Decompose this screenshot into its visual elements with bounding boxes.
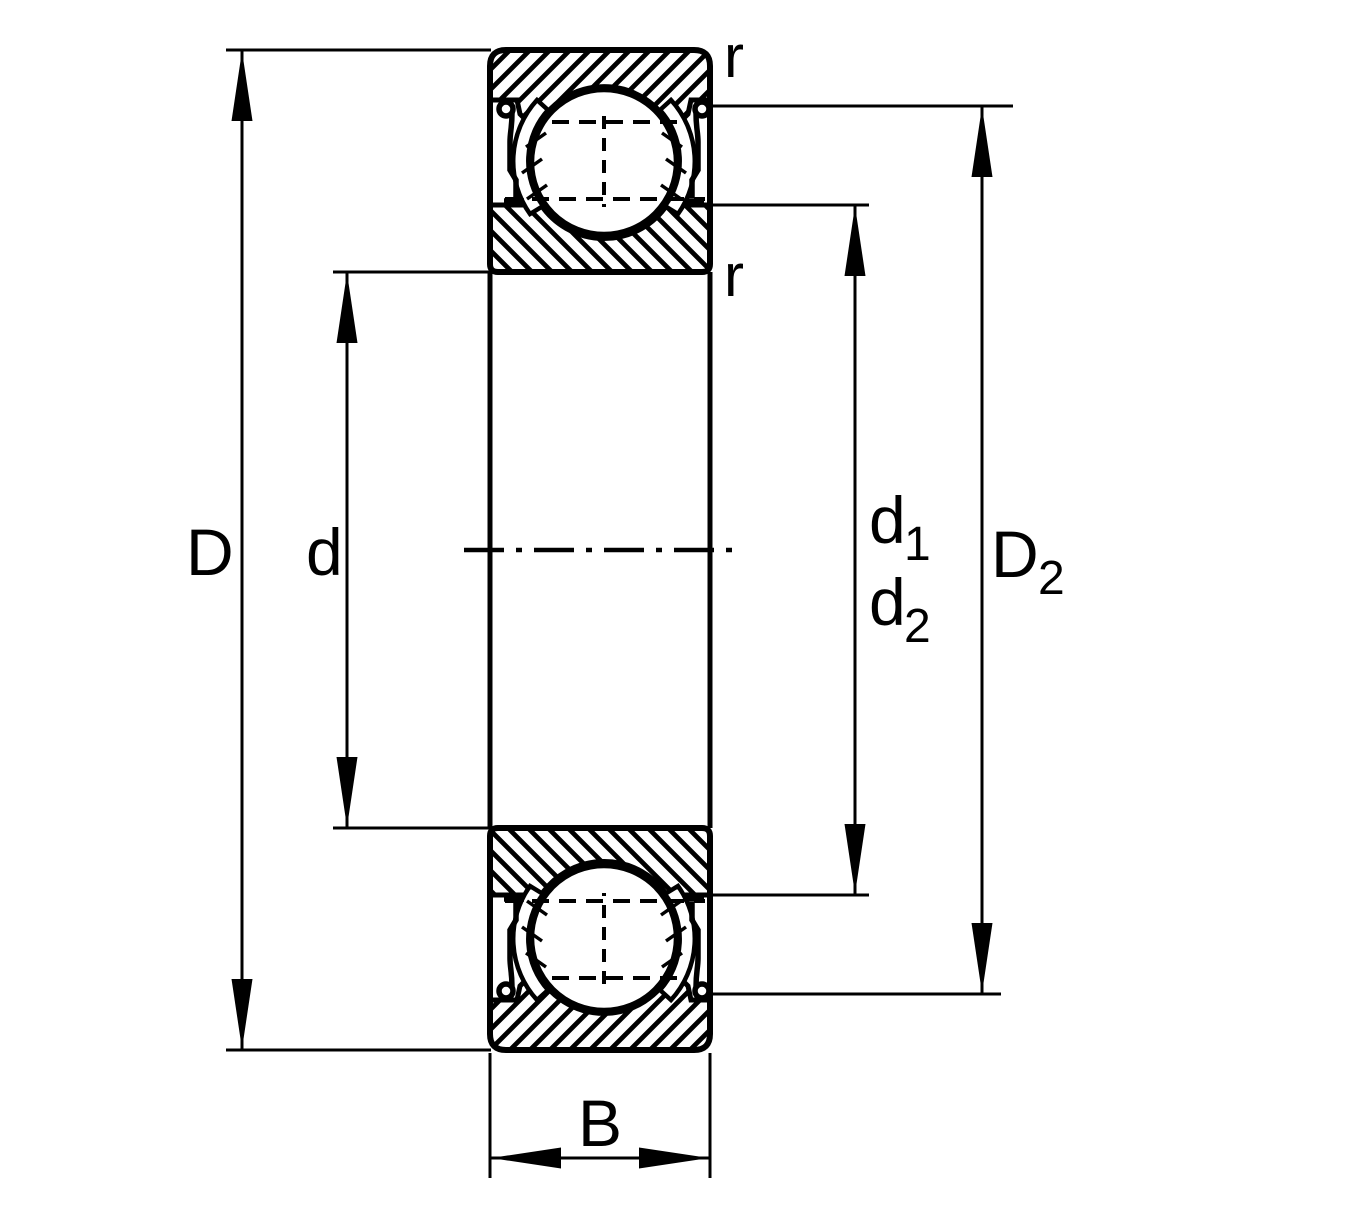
bearing-dimension-drawing: D d d 1 d 2 D 2 B r r xyxy=(0,0,1350,1200)
label-d2-sub: 2 xyxy=(904,600,931,653)
label-chamfer-top: r xyxy=(724,23,744,90)
label-bore-diameter: d xyxy=(306,515,343,589)
label-chamfer-mid: r xyxy=(724,242,744,309)
technical-drawing-canvas: D d d 1 d 2 D 2 B r r xyxy=(0,0,1350,1200)
arrowhead-down xyxy=(845,824,866,894)
arrowhead-left xyxy=(491,1148,561,1169)
bearing-cross-section-bottom xyxy=(490,828,710,1050)
arrowhead-down xyxy=(972,923,993,993)
label-d1-main: d xyxy=(869,483,906,557)
bearing-cross-section-top xyxy=(490,50,710,272)
label-width: B xyxy=(578,1086,622,1160)
arrowhead-right xyxy=(639,1148,709,1169)
label-D2-sub: 2 xyxy=(1038,552,1065,605)
dimension-D xyxy=(226,50,491,1050)
arrowhead-up xyxy=(972,107,993,177)
arrowhead-down xyxy=(337,757,358,827)
label-outer-diameter: D xyxy=(186,515,234,589)
label-d2-main: d xyxy=(869,565,906,639)
dimension-D2 xyxy=(711,106,1013,994)
arrowhead-up xyxy=(232,51,253,121)
label-d1-sub: 1 xyxy=(904,518,931,571)
arrowhead-up xyxy=(337,273,358,343)
arrowhead-up xyxy=(845,206,866,276)
label-D2-main: D xyxy=(991,517,1039,591)
arrowhead-down xyxy=(232,979,253,1049)
